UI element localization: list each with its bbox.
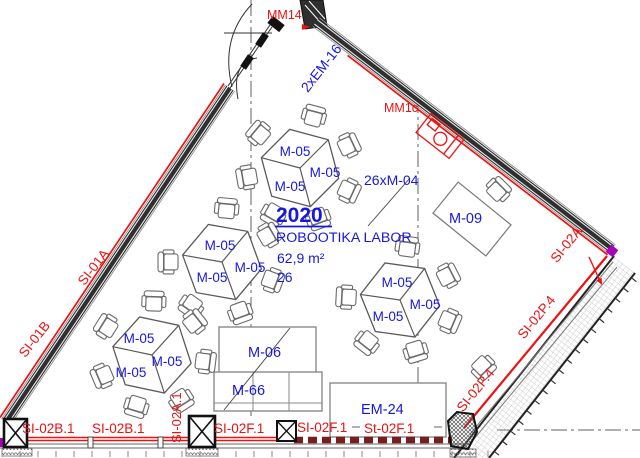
chair-icon (335, 285, 356, 310)
m05-label: M-05 (197, 270, 228, 285)
door-label: 2xEM-16 (298, 41, 345, 95)
chair-icon (194, 348, 217, 374)
wall-si02a-label: SI-02A. (548, 221, 588, 265)
m05-label: M-05 (382, 275, 413, 290)
room-area-label: 62,9 m² (277, 250, 325, 266)
chair-icon (235, 164, 259, 191)
room-name-label: ROBOOTIKA LABOR (276, 230, 412, 246)
chair-icon (88, 361, 116, 391)
room-number-label: 2020 (276, 204, 323, 227)
chair-icon (401, 339, 430, 365)
floor-plan-canvas: 2020 ROBOOTIKA LABOR 62,9 m² 26 2xEM-16 … (0, 0, 640, 458)
chair-icon (158, 250, 178, 274)
bench-em24-label: EM-24 (361, 402, 404, 418)
chair-icon (335, 176, 363, 206)
m05-label: M-05 (235, 260, 266, 275)
chair-icon (434, 260, 463, 290)
table-m09-label: M-09 (449, 211, 482, 227)
chair-icon (142, 291, 167, 312)
m05-label: M-05 (410, 297, 441, 312)
m05-label: M-05 (152, 354, 183, 369)
chair-icon (122, 394, 151, 420)
wall-si02a1-label: SI-02A.1 (169, 392, 184, 443)
survey-ticks (2, 451, 488, 457)
column-3 (277, 421, 296, 441)
wall-si02f1-label-2: SI-02F.1 (297, 420, 347, 435)
column-2 (189, 416, 215, 447)
mm1c-label: MM1c (384, 101, 418, 115)
firewall-line-right (464, 256, 607, 428)
m05-label: M-05 (280, 144, 311, 159)
m05-label: M-05 (116, 365, 147, 380)
mm14-label: MM14 (267, 8, 302, 22)
chair-icon (335, 130, 363, 160)
cabinet-m06-label: M-06 (248, 345, 281, 361)
m05-label: M-05 (373, 309, 404, 324)
cabinet-m66-label: M-66 (232, 383, 265, 399)
m05-label: M-05 (205, 238, 236, 253)
wall-si02f1-label-1: SI-02F.1 (214, 421, 264, 436)
room-capacity-label: 26 (277, 269, 293, 285)
chair-icon (243, 118, 274, 149)
floor-plan: 2020 ROBOOTIKA LABOR 62,9 m² 26 2xEM-16 … (0, 0, 640, 458)
wall-si02b1-label-1: SI-02B.1 (22, 421, 75, 436)
door-swing-arc (229, 4, 252, 87)
chair-icon (91, 311, 121, 342)
wall-si02b1-label-2: SI-02B.1 (92, 421, 145, 436)
cabinet-m66 (214, 372, 322, 411)
wall-st02f1-label: St-02F.1 (364, 421, 414, 436)
m05-label: M-05 (124, 331, 155, 346)
chair-icon (300, 103, 328, 129)
m05-label: M-05 (310, 165, 341, 180)
chair-icon (214, 197, 240, 219)
mm1c-fixture (416, 114, 464, 159)
chair-count-label: 26xM-04 (364, 172, 419, 188)
table-cluster-4 (327, 228, 473, 372)
m05-label: M-05 (275, 179, 306, 194)
